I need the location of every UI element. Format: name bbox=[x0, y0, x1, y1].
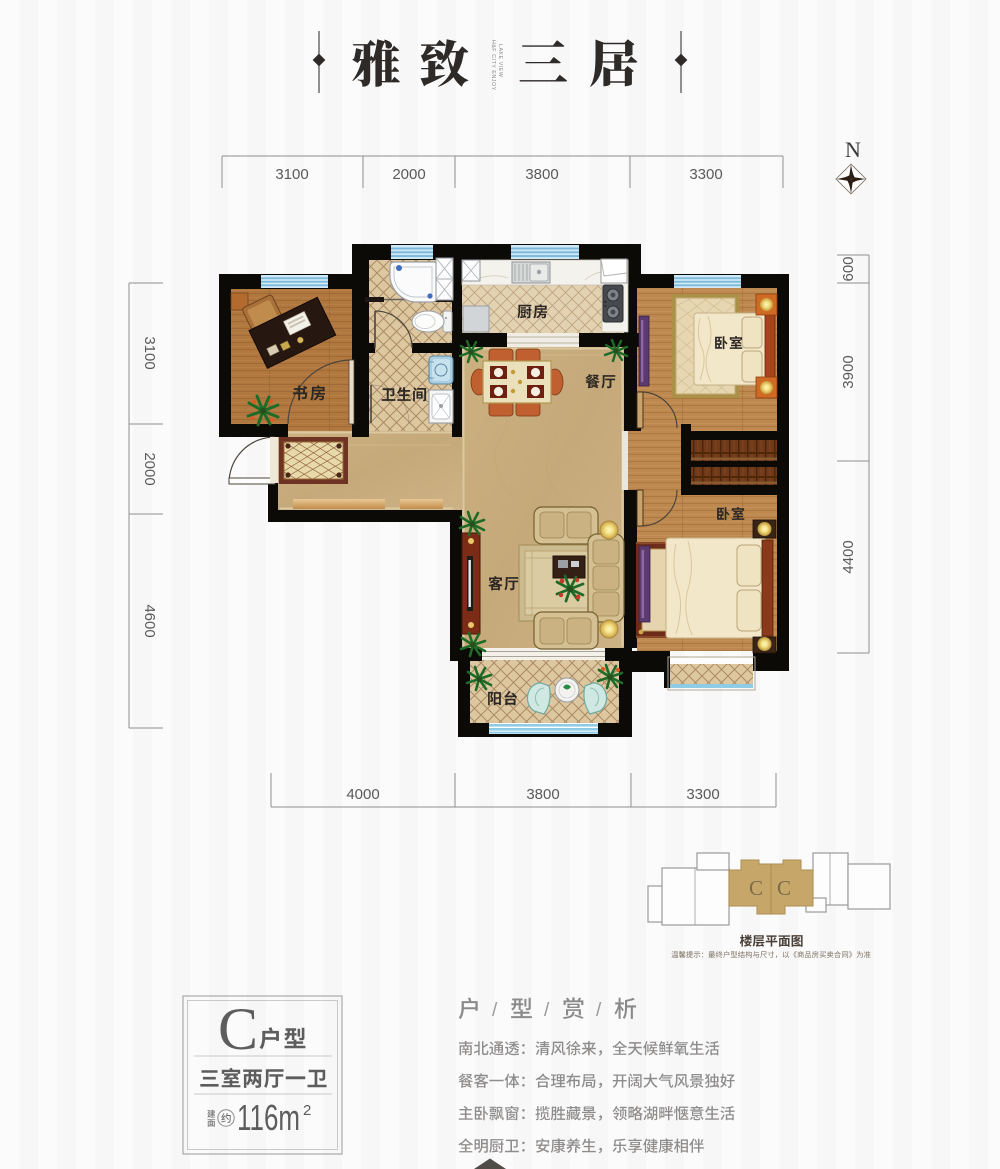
svg-text:3900: 3900 bbox=[840, 355, 857, 388]
svg-text:/: / bbox=[492, 1000, 498, 1021]
svg-text:4400: 4400 bbox=[840, 540, 857, 573]
svg-text:3100: 3100 bbox=[275, 166, 308, 183]
svg-text:4600: 4600 bbox=[141, 604, 158, 637]
svg-text:H&F CITY ENJOY: H&F CITY ENJOY bbox=[490, 40, 496, 91]
svg-text:3800: 3800 bbox=[525, 166, 558, 183]
svg-text:/: / bbox=[596, 1000, 602, 1021]
svg-text:C: C bbox=[218, 996, 258, 1062]
svg-text:600: 600 bbox=[840, 256, 857, 281]
svg-text:/: / bbox=[544, 1000, 550, 1021]
svg-text:3300: 3300 bbox=[686, 786, 719, 803]
svg-text:3300: 3300 bbox=[689, 166, 722, 183]
svg-text:C: C bbox=[777, 876, 791, 900]
svg-text:2: 2 bbox=[303, 1102, 311, 1119]
svg-text:116m: 116m bbox=[237, 1097, 300, 1138]
svg-text:2000: 2000 bbox=[141, 452, 158, 485]
svg-text:2000: 2000 bbox=[392, 166, 425, 183]
svg-text:N: N bbox=[845, 137, 861, 162]
svg-text:3800: 3800 bbox=[526, 786, 559, 803]
svg-text:C: C bbox=[749, 876, 763, 900]
svg-text:LAKE VIEW: LAKE VIEW bbox=[497, 44, 503, 77]
svg-text:3100: 3100 bbox=[141, 336, 158, 369]
svg-text:4000: 4000 bbox=[346, 786, 379, 803]
